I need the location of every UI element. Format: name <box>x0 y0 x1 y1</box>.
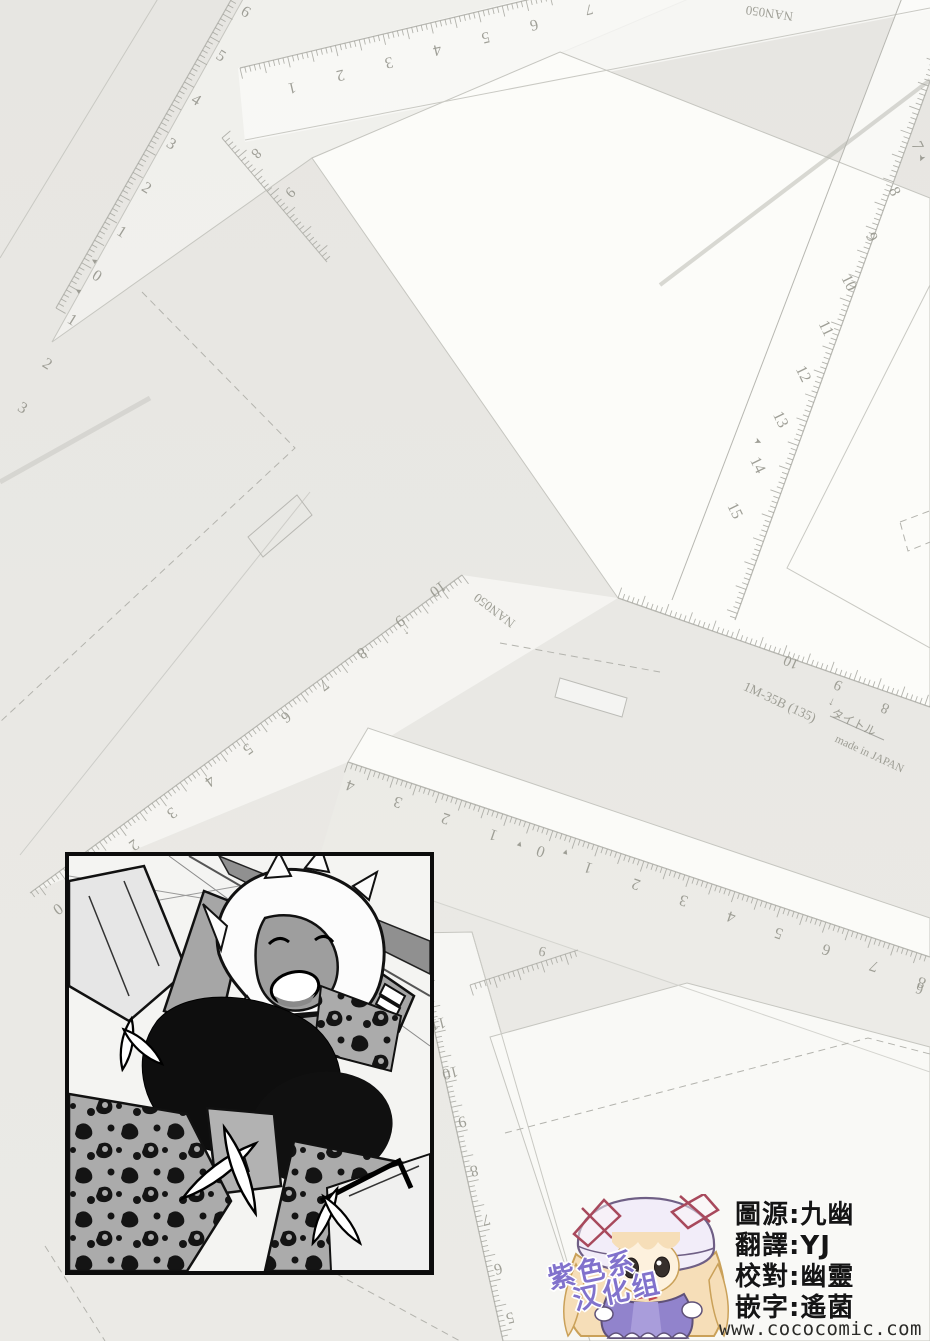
credit-line-translator: 翻譯:YJ <box>735 1231 854 1262</box>
manga-panel <box>65 852 434 1275</box>
website-url: www.cococomic.com <box>719 1318 922 1340</box>
credit-line-proofreader: 校對:幽靈 <box>735 1262 854 1293</box>
credits-block: 圖源:九幽 翻譯:YJ 校對:幽靈 嵌字:遙菌 <box>735 1200 854 1324</box>
manga-panel-art <box>69 856 430 1271</box>
credit-line-source: 圖源:九幽 <box>735 1200 854 1231</box>
page: 3210123456123456897891011121314151098432… <box>0 0 930 1341</box>
